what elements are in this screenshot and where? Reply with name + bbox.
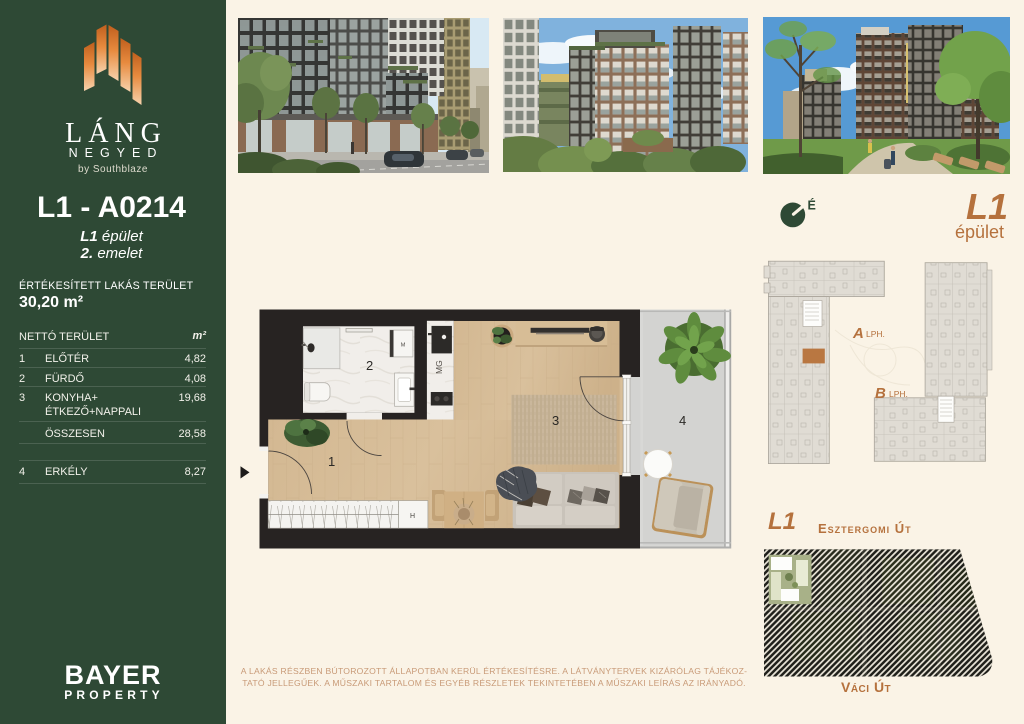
svg-text:LÁNG: LÁNG <box>65 118 167 149</box>
svg-text:A: A <box>852 325 864 342</box>
svg-text:by Southblaze: by Southblaze <box>78 164 148 175</box>
svg-text:2: 2 <box>366 358 373 373</box>
svg-text:B: B <box>875 385 886 402</box>
svg-text:É: É <box>808 198 816 213</box>
svg-text:M: M <box>401 343 406 349</box>
svg-text:LPH.: LPH. <box>889 389 908 399</box>
svg-text:NEGYED: NEGYED <box>69 146 164 160</box>
svg-text:H: H <box>410 513 415 520</box>
svg-text:3: 3 <box>552 413 559 428</box>
svg-text:MG: MG <box>434 360 444 374</box>
svg-text:LPH.: LPH. <box>866 329 885 339</box>
svg-text:4: 4 <box>679 413 686 428</box>
svg-text:1: 1 <box>328 454 335 469</box>
